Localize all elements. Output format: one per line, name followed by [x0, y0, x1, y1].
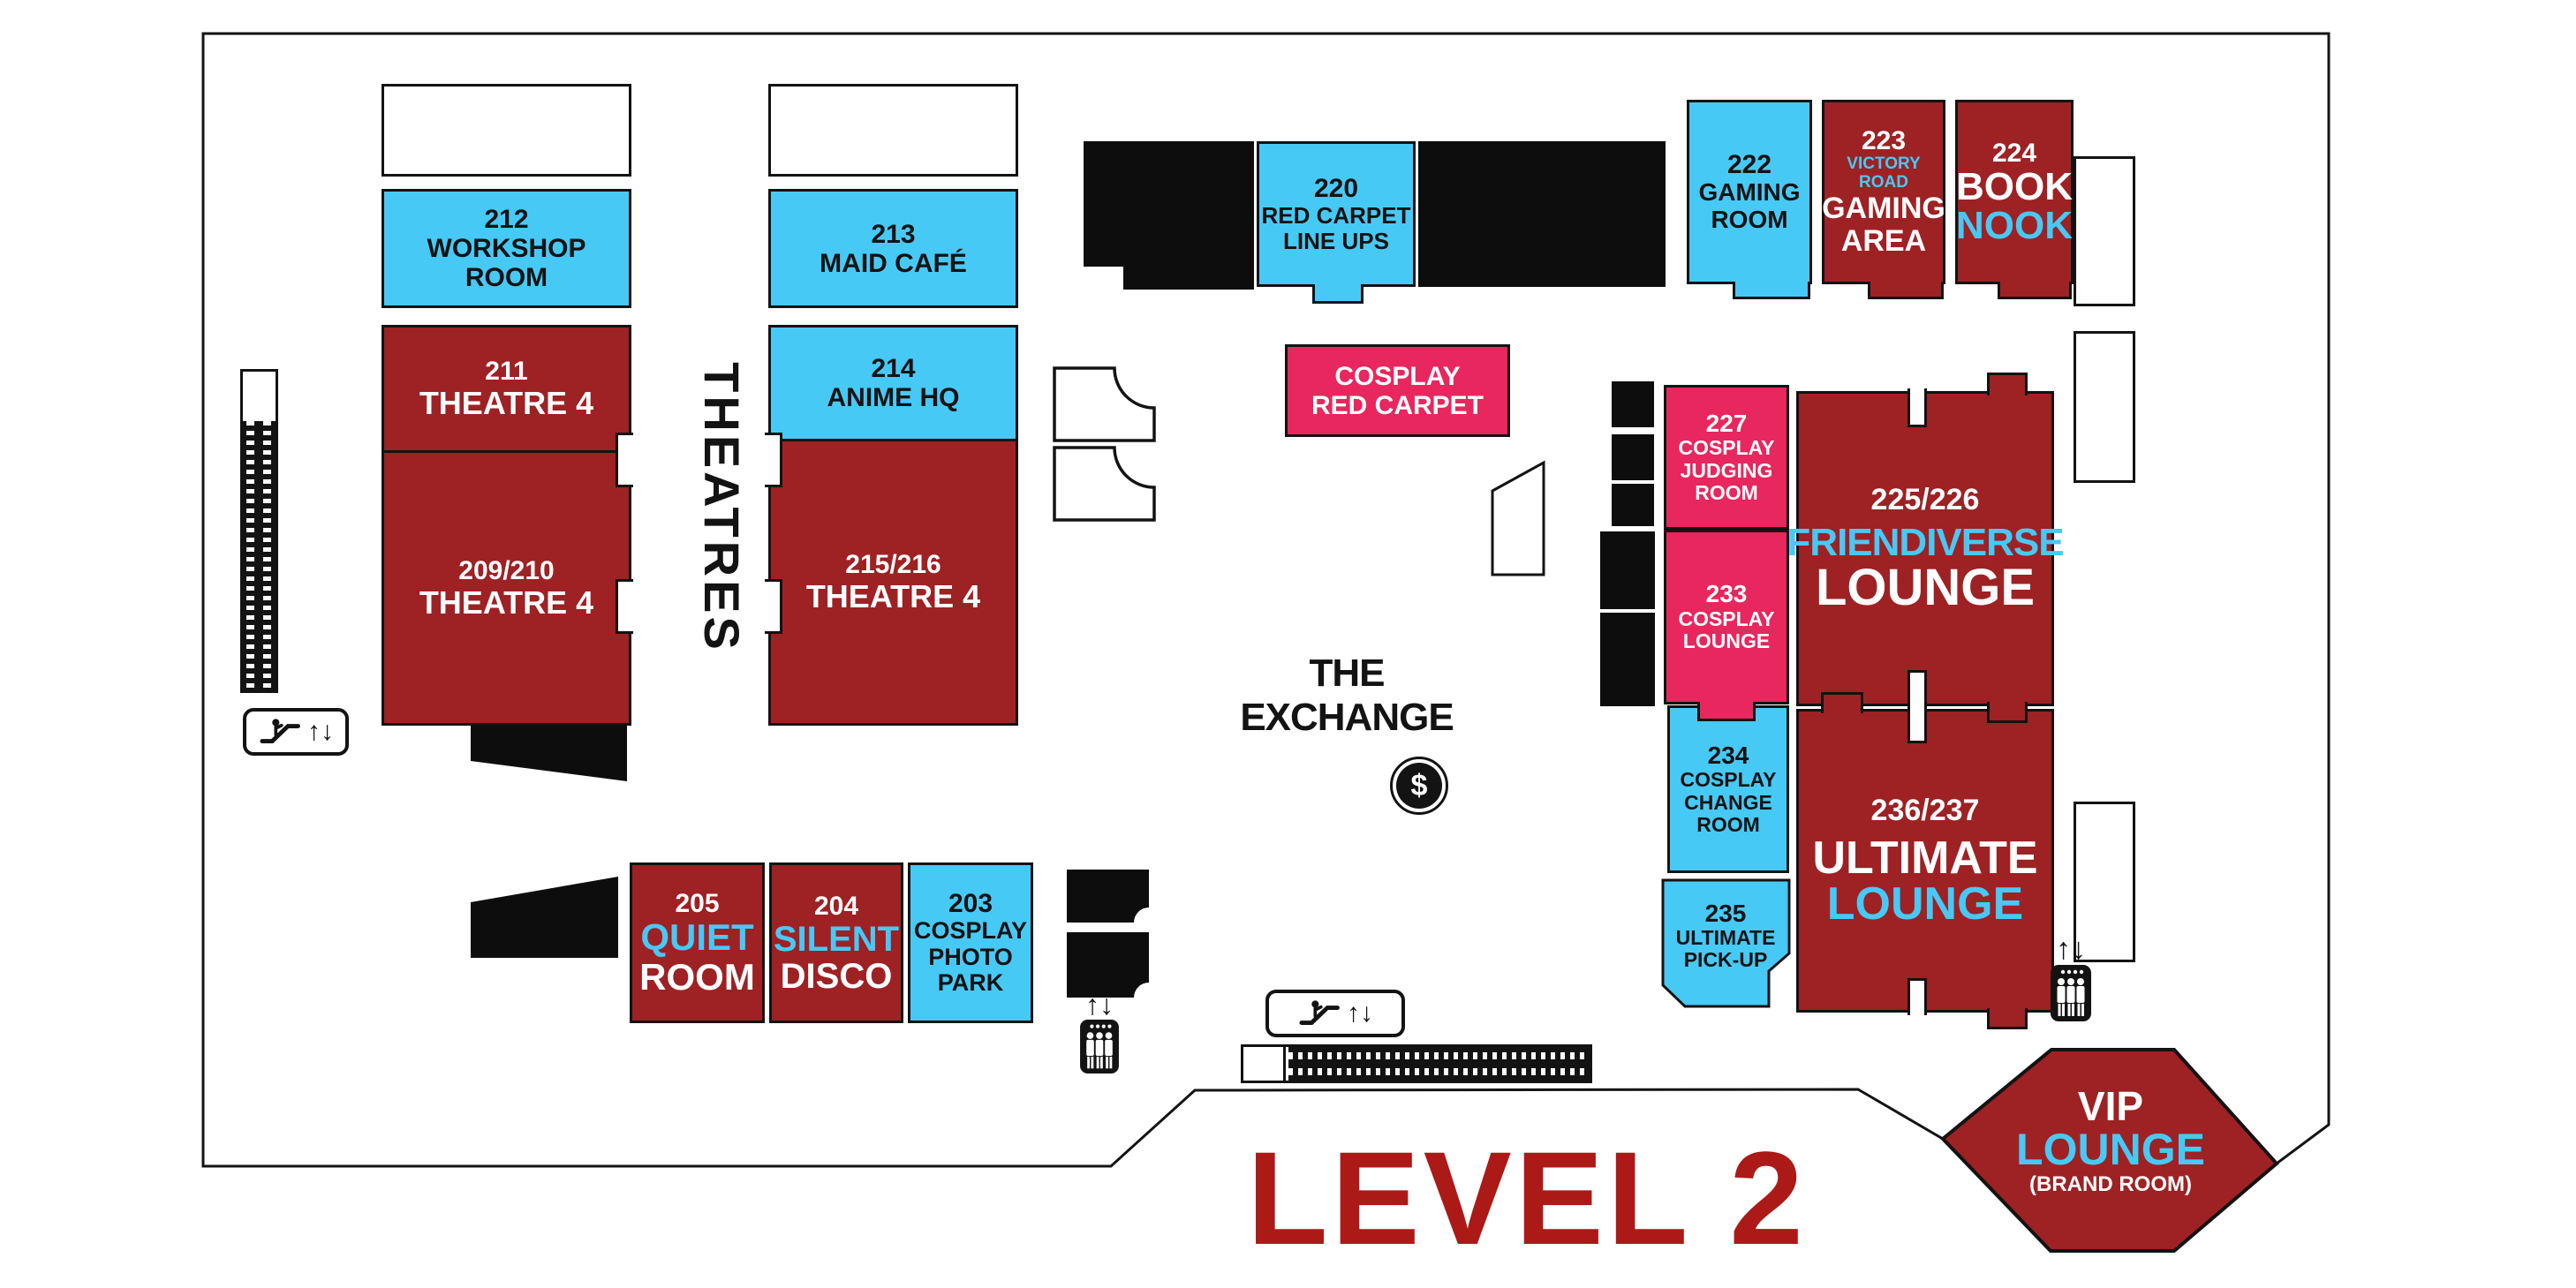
room-number: 212 [484, 205, 528, 234]
room-number: 214 [871, 354, 915, 383]
room-number: 234 [1708, 742, 1749, 770]
room-number: 224 [1992, 139, 2036, 168]
room-236-237-ultimate-lounge: 236/237 ULTIMATE LOUNGE [1796, 709, 2054, 1013]
room-name: VIP [2078, 1086, 2143, 1126]
room-name: ROOM [639, 958, 755, 997]
room-number: 215/216 [845, 550, 941, 579]
unlabeled-room [768, 84, 1018, 177]
elevator-right: ↑↓ [2049, 934, 2093, 1027]
escalator-track-horizontal [1241, 1044, 1592, 1083]
cosplay-red-carpet-area: COSPLAY RED CARPET [1285, 344, 1510, 437]
up-down-arrows-icon: ↑↓ [1347, 1000, 1373, 1027]
room-233-cosplay-lounge: 233 COSPLAY LOUNGE [1664, 530, 1789, 704]
unlabeled-room [2074, 156, 2135, 306]
room-name: QUIET [640, 918, 753, 957]
room-235-ultimate-pick-up: 235 ULTIMATE PICK-UP [1667, 883, 1784, 989]
up-down-arrows-icon: ↑↓ [1078, 990, 1121, 1019]
elevator-icon [1079, 1019, 1120, 1074]
room-name: MAID CAFÉ [820, 249, 967, 278]
escalator-step-stripe [263, 421, 271, 690]
room-name: ROOM [1696, 814, 1760, 836]
room-name: THEATRE 4 [806, 579, 980, 614]
escalator-step-stripe [1288, 1052, 1590, 1059]
area-name: COSPLAY [1334, 362, 1460, 391]
wall-slot [1907, 706, 1927, 743]
room-name: WORKSHOP ROOM [384, 234, 629, 292]
elevator-icon [2050, 964, 2092, 1022]
pillar [1612, 434, 1654, 480]
room-233-door-tab [1697, 702, 1756, 721]
room-name: NOOK [1956, 207, 2073, 245]
pillar [1612, 381, 1654, 427]
room-224-book-nook: 224 BOOK NOOK [1955, 100, 2074, 284]
room-name: THEATRE 4 [419, 386, 593, 421]
room-212-workshop-room: 212 WORKSHOP ROOM [381, 189, 631, 308]
room-name: COSPLAY [1680, 769, 1776, 791]
room-name: JUDGING [1681, 460, 1773, 482]
room-214-anime-hq: 214 ANIME HQ [768, 325, 1018, 441]
room-subtitle: VICTORY ROAD [1824, 155, 1943, 192]
room-number: 209/210 [458, 556, 554, 585]
floor-map-level-2: 212 WORKSHOP ROOM 211 THEATRE 4 209/210 … [0, 0, 2576, 1288]
room-name: ULTIMATE [1676, 927, 1776, 949]
escalator-icon [1297, 998, 1343, 1028]
room-name: BOOK [1956, 168, 2073, 207]
room-number: 227 [1706, 411, 1748, 438]
room-number: 225/226 [1871, 484, 1980, 516]
escalator-steps [243, 421, 276, 690]
dollar-sign-glyph: $ [1396, 763, 1442, 809]
room-number: 235 [1705, 900, 1747, 927]
the-exchange-label: THE EXCHANGE [1201, 652, 1492, 740]
pillar [1600, 531, 1655, 609]
room-number: 220 [1314, 174, 1358, 203]
pillar [1600, 613, 1655, 706]
room-name: COSPLAY [1678, 437, 1774, 459]
escalator-steps [1288, 1047, 1590, 1081]
pillar [1612, 484, 1654, 526]
room-225-226-door-tab [1987, 702, 2028, 723]
room-number: 211 [485, 357, 527, 386]
room-name: AREA [1841, 225, 1926, 258]
room-number: 203 [948, 889, 993, 918]
room-222-door-tab [1733, 282, 1810, 299]
vip-lounge-label: VIP LOUNGE (BRAND ROOM) [1985, 1064, 2236, 1218]
room-215-216-theatre-4: 215/216 THEATRE 4 [768, 439, 1018, 726]
elevator-left: ↑↓ [1078, 990, 1121, 1079]
room-234-cosplay-change-room: 234 COSPLAY CHANGE ROOM [1667, 705, 1789, 873]
room-name: LOUNGE [1683, 630, 1770, 652]
room-name: PHOTO [928, 945, 1013, 971]
unlabeled-room [381, 84, 631, 177]
room-name: ANIME HQ [827, 383, 960, 412]
page-title: LEVEL 2 [1247, 1132, 1807, 1264]
room-203-cosplay-photo-park: 203 COSPLAY PHOTO PARK [908, 862, 1033, 1023]
escalator-sign-left: ↑↓ [243, 708, 349, 756]
room-222-gaming-room: 222 GAMING ROOM [1687, 100, 1812, 284]
room-227-cosplay-judging-room: 227 COSPLAY JUDGING ROOM [1664, 385, 1789, 530]
room-name: ROOM [1695, 482, 1758, 504]
room-subtitle: (BRAND ROOM) [2029, 1173, 2192, 1196]
room-number: 223 [1862, 126, 1906, 155]
door-notch [765, 579, 782, 634]
door-notch [616, 579, 633, 634]
room-name: COSPLAY [914, 918, 1027, 945]
escalator-sign-bottom: ↑↓ [1265, 990, 1405, 1037]
room-220-door-tab [1312, 284, 1364, 304]
room-225-226-friendiverse-lounge: 225/226 FRIENDIVERSE LOUNGE [1796, 391, 2054, 706]
room-name: LOUNGE [2016, 1126, 2205, 1173]
room-name: PARK [938, 970, 1004, 997]
room-220-red-carpet-line-ups: 220 RED CARPET LINE UPS [1257, 141, 1416, 287]
up-down-arrows-icon: ↑↓ [2049, 934, 2093, 964]
room-213-maid-cafe: 213 MAID CAFÉ [768, 189, 1018, 308]
room-211-theatre-4: 211 THEATRE 4 [381, 325, 631, 453]
room-name: ROOM [1711, 207, 1787, 234]
escalator-track-vertical [240, 369, 278, 693]
room-number: 205 [675, 889, 719, 918]
wall-slot [1907, 978, 1927, 1015]
room-225-226-door-tab [1987, 373, 2028, 395]
room-205-quiet-room: 205 QUIET ROOM [630, 862, 765, 1023]
escalator-icon [258, 717, 304, 747]
room-name: PICK-UP [1684, 949, 1768, 971]
room-name: LOUNGE [1827, 881, 2023, 927]
room-236-237-door-tab [1821, 692, 1863, 713]
room-name: DISCO [781, 958, 893, 995]
dollar-sign-icon: $ [1390, 757, 1448, 815]
door-notch [765, 433, 782, 487]
room-number: 222 [1727, 150, 1771, 179]
room-209-210-theatre-4: 209/210 THEATRE 4 [381, 450, 631, 726]
up-down-arrows-icon: ↑↓ [307, 719, 334, 745]
room-236-237-door-tab [1987, 1008, 2028, 1029]
room-name: GAMING [1822, 192, 1945, 225]
room-224-door-tab [1998, 282, 2072, 299]
room-name: SILENT [774, 921, 899, 958]
wall-slot [1907, 388, 1927, 427]
escalator-landing [1243, 1047, 1286, 1081]
wall-slot [1907, 670, 1927, 709]
unlabeled-room [2074, 331, 2135, 483]
room-name: THEATRE 4 [419, 585, 593, 621]
wall-block-bite [1067, 932, 1149, 998]
room-name: LOUNGE [1816, 562, 2035, 614]
room-number: 236/237 [1871, 795, 1980, 827]
room-name: LINE UPS [1283, 229, 1389, 254]
room-name: RED CARPET [1261, 203, 1410, 229]
room-204-silent-disco: 204 SILENT DISCO [769, 862, 903, 1023]
room-name: GAMING [1698, 179, 1800, 207]
escalator-step-stripe [1288, 1068, 1590, 1075]
room-223-door-tab [1868, 282, 1944, 299]
room-name: CHANGE [1684, 792, 1772, 814]
room-number: 204 [814, 892, 858, 921]
wall-block-top-right [1418, 141, 1666, 287]
room-number: 213 [871, 220, 915, 249]
theatres-label: THEATRES [691, 353, 753, 662]
room-name: FRIENDIVERSE [1787, 523, 2063, 562]
room-name: COSPLAY [1678, 608, 1774, 630]
room-number: 233 [1706, 581, 1748, 608]
escalator-step-stripe [246, 421, 254, 690]
room-223-victory-road-gaming-area: 223 VICTORY ROAD GAMING AREA [1822, 100, 1945, 284]
door-notch [616, 433, 633, 487]
room-name: ULTIMATE [1812, 835, 2037, 881]
area-name: RED CARPET [1311, 391, 1484, 420]
